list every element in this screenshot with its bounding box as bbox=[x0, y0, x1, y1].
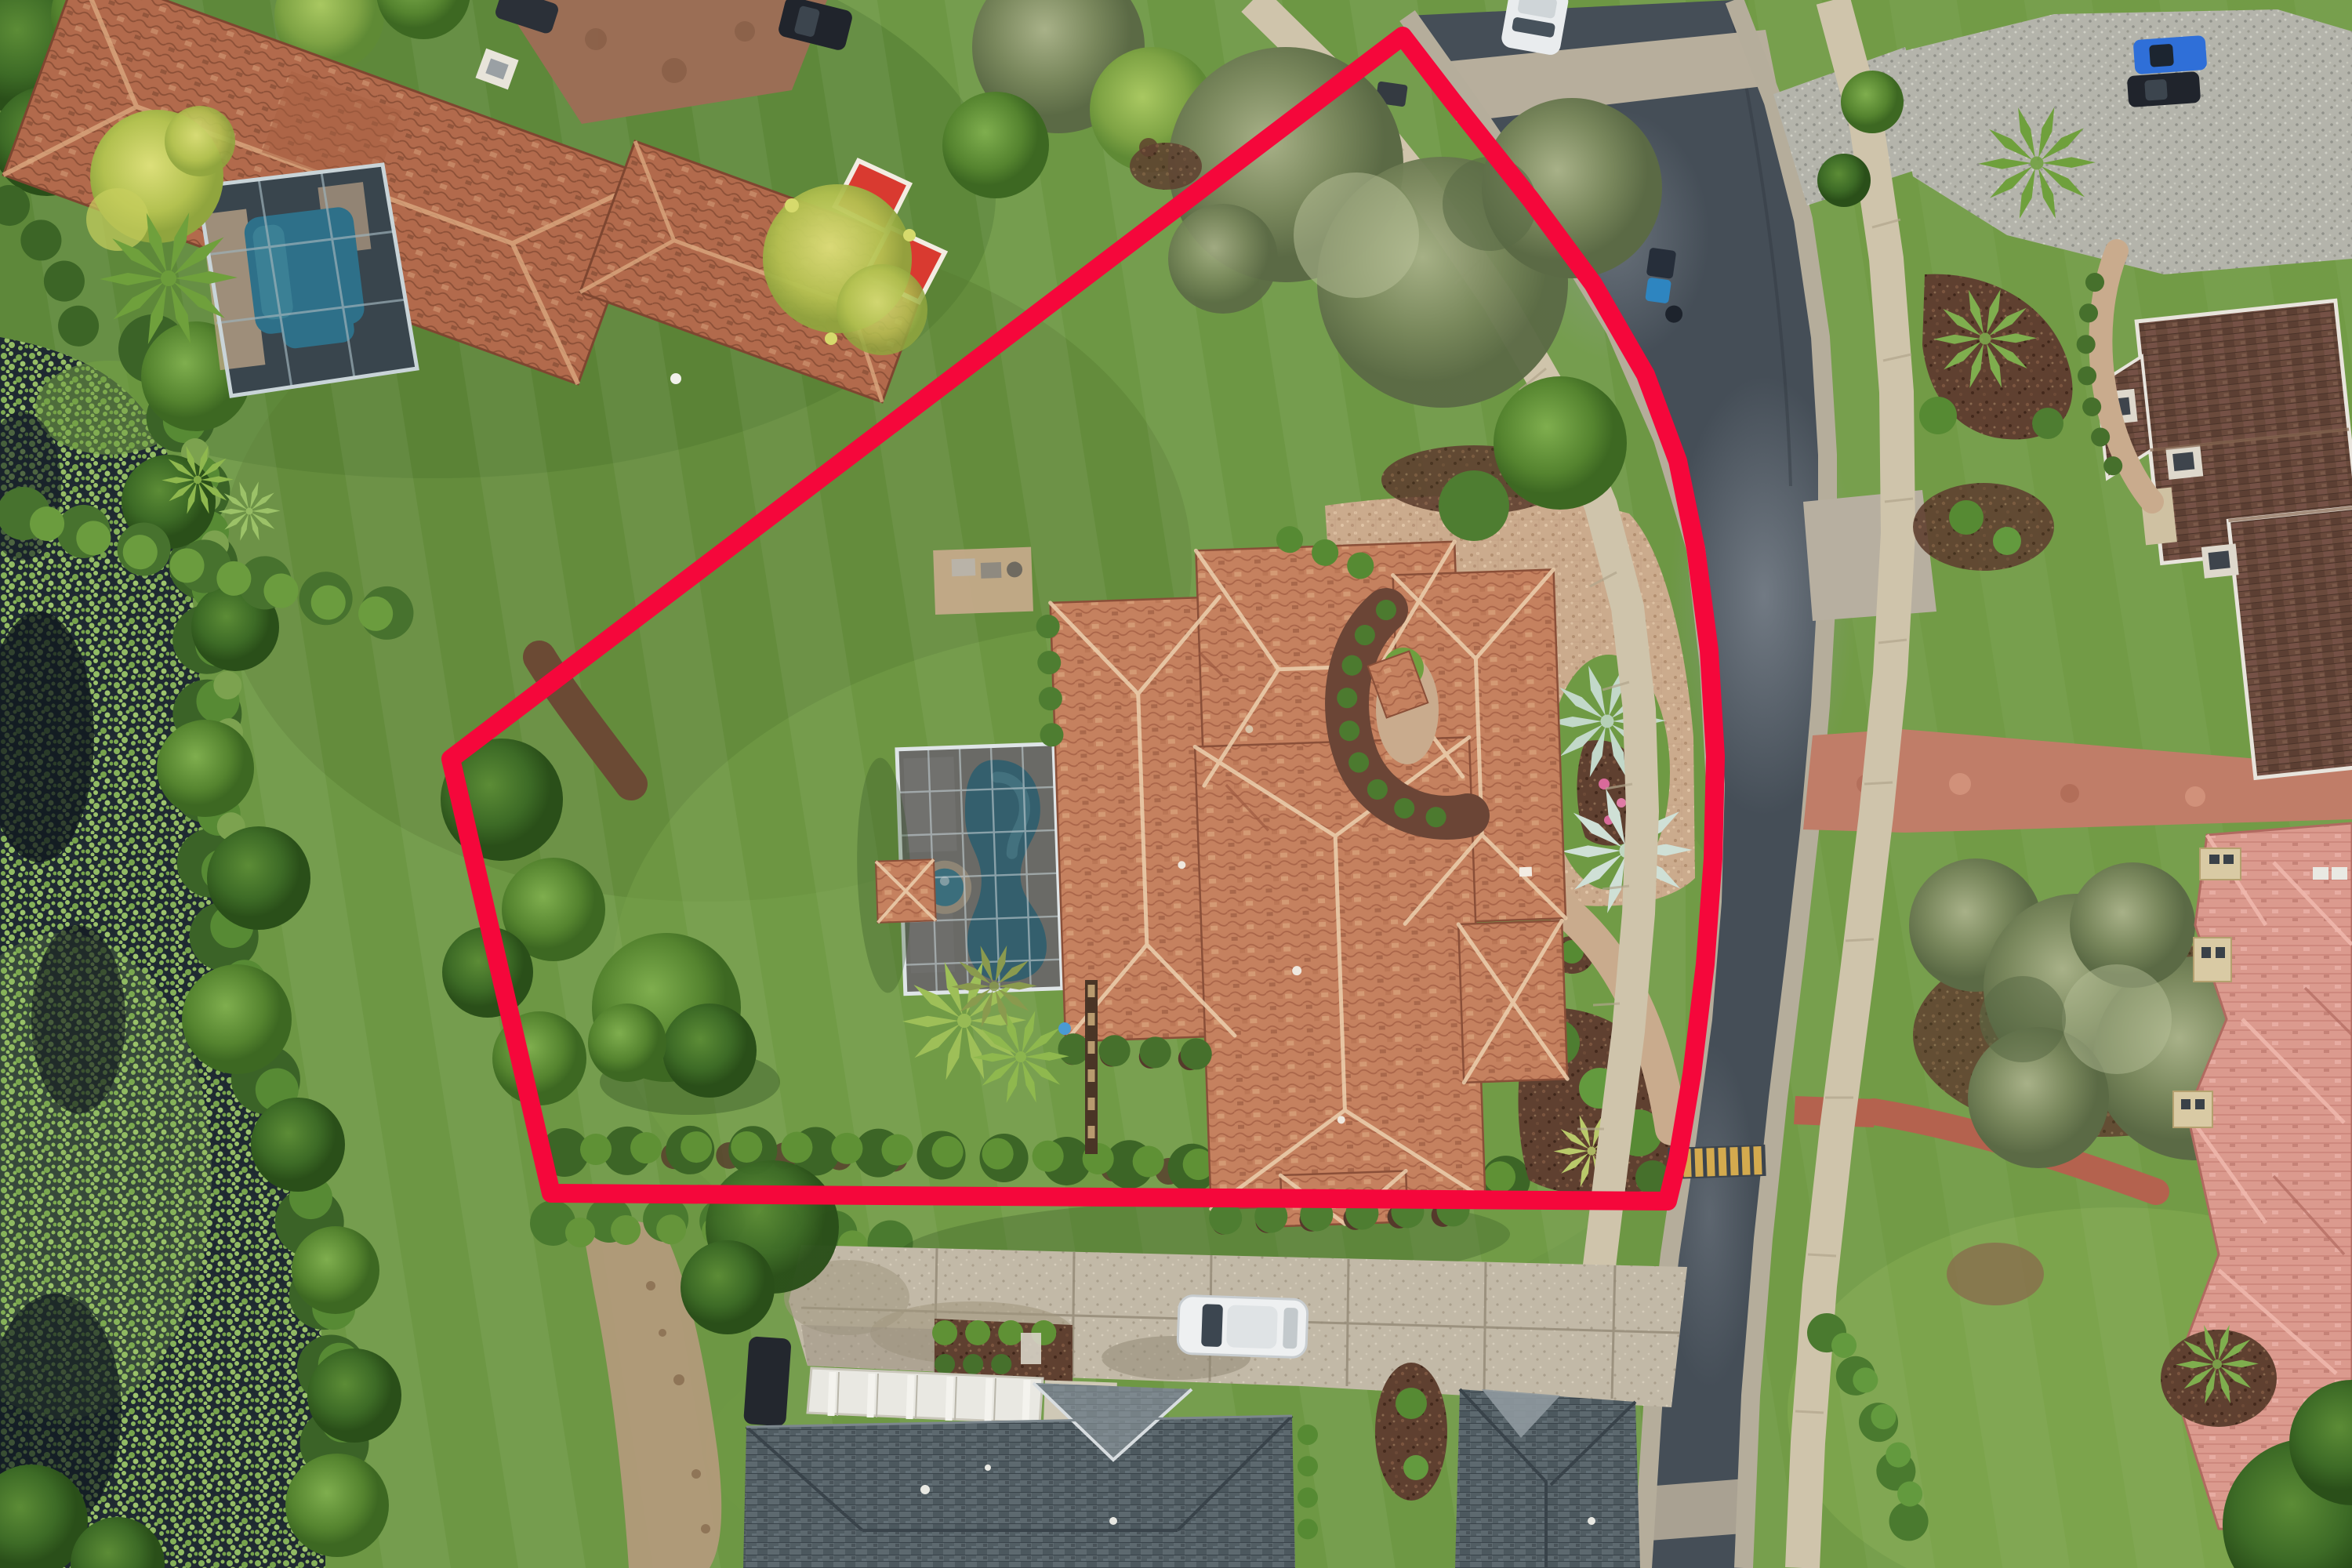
neighbor-concrete-apron bbox=[1803, 490, 1936, 621]
black-car bbox=[2127, 71, 2201, 107]
aerial-photo bbox=[0, 0, 2352, 1568]
outdoor-kitchen bbox=[933, 547, 1033, 615]
white-suv bbox=[1178, 1295, 1308, 1358]
pool-toy-dot bbox=[1058, 1022, 1071, 1035]
entry-garden-bed bbox=[935, 1319, 1073, 1381]
white-flat-roof bbox=[808, 1368, 1043, 1423]
blue-recycle-bin bbox=[1645, 278, 1671, 304]
neighbor-pool-enclosure bbox=[198, 165, 417, 396]
blue-car bbox=[2133, 35, 2208, 74]
parked-dark-car bbox=[743, 1336, 792, 1426]
aerial-photo-stage bbox=[0, 0, 2352, 1568]
open-water bbox=[31, 925, 125, 1113]
overhanging-tree bbox=[681, 1240, 775, 1334]
gray-roof-right-wing bbox=[1455, 1389, 1640, 1568]
pool-shed bbox=[876, 859, 936, 923]
lawn-marker-dot bbox=[670, 373, 681, 384]
